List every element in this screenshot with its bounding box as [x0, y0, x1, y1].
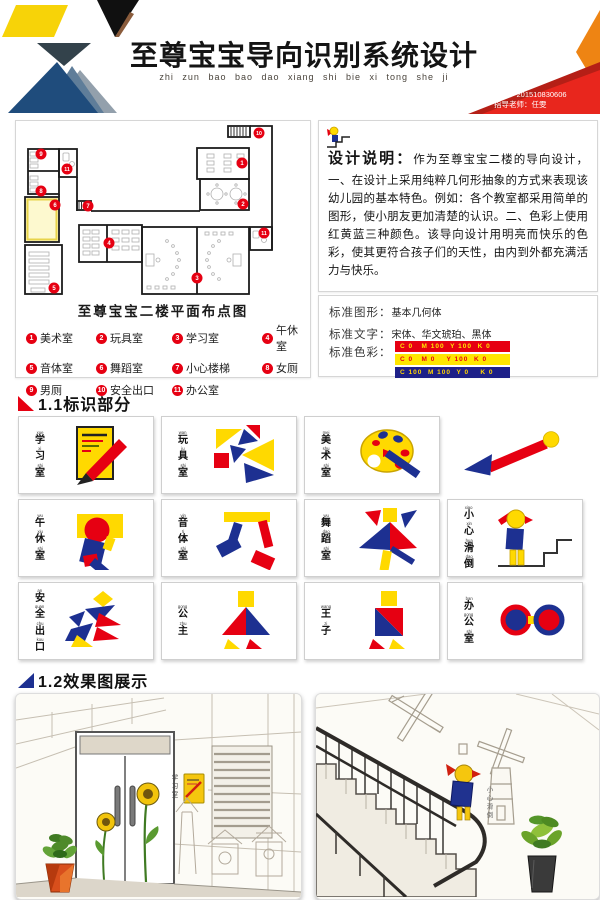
exit-sign-icon: [53, 589, 153, 653]
render-staircase: 小心滑倒: [315, 693, 600, 900]
sign-card-toys: wan玩 ju具 shi室: [161, 416, 297, 494]
sign-label: ban办 gong公 shi室: [456, 597, 482, 646]
sign-label: xiao小 xin心 hua滑 dao倒: [456, 506, 482, 571]
floorplan-legend: 1美术室 2玩具室 3学习室 4午休室 5音体室 6舞蹈室 7小心楼梯 8女厕 …: [26, 322, 306, 398]
sign-card-art: mei美 shu术 shi室: [304, 416, 440, 494]
description-panel: 设计说明：作为至尊宝宝二楼的导向设计，一、在设计上采用纯粹几何形抽象的方式来表现…: [318, 120, 598, 292]
floorplan-drawing: 1 2 3 4 5 6 7 8 9 10 11 11: [19, 124, 307, 300]
legend-label: 玩具室: [110, 330, 143, 346]
standard-color-row: 标准色彩：: [329, 343, 392, 361]
sign-card-office: ban办 gong公 shi室: [447, 582, 583, 660]
red-swatch: C 0 M 100 Y 100 K 0: [395, 341, 510, 352]
legend-item: 11办公室: [172, 382, 262, 398]
student-id: 学号：201510830606: [494, 90, 598, 100]
description-heading: 设计说明：: [328, 151, 413, 167]
legend-item: 6舞蹈室: [96, 360, 172, 376]
wall-sign-text: 小心滑倒: [483, 786, 493, 820]
legend-item: 8女厕: [262, 360, 306, 376]
sign-label: wang王 zi子: [313, 605, 339, 637]
section-renders: 1.2效果图展示: [18, 668, 148, 692]
sign-label: wu午 xiu休 shi室: [27, 514, 53, 563]
sign-card-caution: xiao小 xin心 hua滑 dao倒: [447, 499, 583, 577]
legend-item: 1美术室: [26, 322, 96, 354]
design-poster: 至尊宝宝导向识别系统设计 zhi zun bao bao dao xiang s…: [0, 0, 600, 900]
stair-figure-icon: [325, 125, 351, 149]
legend-label: 午休室: [276, 322, 306, 354]
section-renders-title: 1.2效果图展示: [38, 668, 148, 692]
study-sign-icon: [53, 423, 153, 487]
legend-item: 7小心楼梯: [172, 360, 262, 376]
svg-text:11: 11: [64, 167, 70, 173]
legend-item: 5音体室: [26, 360, 96, 376]
legend-marker: 4: [262, 333, 273, 344]
legend-label: 舞蹈室: [110, 360, 143, 376]
render-classroom-doors: 学习室: [15, 693, 302, 900]
page-title: 至尊宝宝导向识别系统设计: [118, 34, 490, 74]
standard-graphic-label: 标准图形：: [329, 307, 392, 319]
floorplan-panel: 1 2 3 4 5 6 7 8 9 10 11 11 至尊宝宝二楼平面布点图 1…: [15, 120, 311, 378]
music-sign-icon: [196, 506, 296, 570]
sign-label: yin音 ti体 shi室: [170, 514, 196, 563]
section-signs: 1.1标识部分: [18, 391, 131, 415]
design-description: 设计说明：作为至尊宝宝二楼的导向设计，一、在设计上采用纯粹几何形抽象的方式来表现…: [328, 148, 588, 281]
cmyk-swatches: C 0 M 100 Y 100 K 0 C 0 M 0 Y 100 K 0 C …: [395, 341, 510, 378]
princess-sign-icon: [196, 589, 296, 653]
sign-label: an安 quan全 chu出 kou口: [27, 589, 53, 654]
plan-walls: [25, 126, 272, 294]
sign-card-prince: wang王 zi子: [304, 582, 440, 660]
teacher-name: 指导老师：任雯: [494, 100, 598, 110]
prince-sign-icon: [339, 589, 439, 653]
legend-marker: 7: [172, 363, 183, 374]
legend-label: 办公室: [186, 382, 219, 398]
floorplan-caption: 至尊宝宝二楼平面布点图: [16, 300, 310, 320]
legend-label: 美术室: [40, 330, 73, 346]
sign-label: mei美 shu术 shi室: [313, 431, 339, 480]
yellow-parallelogram-icon: [2, 5, 68, 37]
svg-text:11: 11: [261, 231, 267, 237]
standards-panel: 标准图形：基本几何体 标准文字：宋体、华文琥珀、黑体 标准色彩： C 0 M 1…: [318, 295, 598, 377]
credits: 姓名：莫倩 学号：201510830606 指导老师：任雯: [494, 80, 598, 110]
sign-card-study: xue学 xi习 shi室: [18, 416, 154, 494]
standard-graphic-row: 标准图形：基本几何体: [329, 303, 442, 321]
standard-color-label: 标准色彩：: [329, 347, 392, 359]
nap-sign-icon: [53, 506, 153, 570]
sign-card-exit: an安 quan全 chu出 kou口: [18, 582, 154, 660]
legend-marker: 6: [96, 363, 107, 374]
standard-font-label: 标准文字：: [329, 329, 392, 341]
sign-card-arrow: [447, 416, 583, 494]
standard-graphic-value: 基本几何体: [392, 308, 442, 319]
sign-grid: xue学 xi习 shi室 wan玩 ju具 shi室: [18, 416, 584, 660]
legend-label: 小心楼梯: [186, 360, 230, 376]
svg-text:10: 10: [256, 131, 262, 137]
legend-label: 学习室: [186, 330, 219, 346]
office-sign-icon: [482, 589, 582, 653]
title-pinyin: zhi zun bao bao dao xiang shi bie xi ton…: [118, 72, 490, 82]
sign-label: wu舞 dao蹈 shi室: [313, 514, 339, 563]
sign-label: gong公 zhu主: [170, 605, 196, 637]
toy-sign-icon: [196, 423, 296, 487]
yellow-swatch: C 0 M 0 Y 100 K 0: [395, 354, 510, 365]
legend-label: 女厕: [276, 360, 298, 376]
sign-label: wan玩 ju具 shi室: [170, 431, 196, 480]
section-signs-title: 1.1标识部分: [38, 391, 131, 415]
legend-marker: 3: [172, 333, 183, 344]
art-sign-icon: [339, 423, 439, 487]
sign-card-dance: wu舞 dao蹈 shi室: [304, 499, 440, 577]
sign-label: xue学 xi习 shi室: [27, 431, 53, 480]
legend-item: 2玩具室: [96, 322, 172, 354]
description-body: 作为至尊宝宝二楼的导向设计，一、在设计上采用纯粹几何形抽象的方式来表现该幼儿园的…: [328, 154, 588, 277]
student-name: 姓名：莫倩: [494, 80, 598, 90]
logo-inverted-triangle-icon: [37, 43, 91, 66]
sign-card-music: yin音 ti体 shi室: [161, 499, 297, 577]
legend-marker: 1: [26, 333, 37, 344]
legend-marker: 11: [172, 385, 183, 396]
blue-triangle-bullet-icon: [18, 673, 34, 688]
staircase-sketch: [316, 694, 599, 897]
legend-item: 3学习室: [172, 322, 262, 354]
legend-item: 4午休室: [262, 322, 306, 354]
blue-swatch: C 100 M 100 Y 0 K 0: [395, 367, 510, 378]
direction-arrow-icon: [447, 423, 583, 487]
standard-font-value: 宋体、华文琥珀、黑体: [392, 330, 492, 341]
legend-marker: 2: [96, 333, 107, 344]
caution-sign-icon: [482, 506, 582, 570]
legend-label: 音体室: [40, 360, 73, 376]
red-triangle-bullet-icon: [18, 396, 34, 411]
classroom-sketch: [16, 694, 301, 897]
sign-card-nap: wu午 xiu休 shi室: [18, 499, 154, 577]
wall-sign-text: 学习室: [168, 774, 178, 800]
sign-card-princess: gong公 zhu主: [161, 582, 297, 660]
dance-sign-icon: [339, 506, 439, 570]
legend-marker: 8: [262, 363, 273, 374]
black-triangle-icon: [97, 0, 139, 37]
legend-marker: 5: [26, 363, 37, 374]
